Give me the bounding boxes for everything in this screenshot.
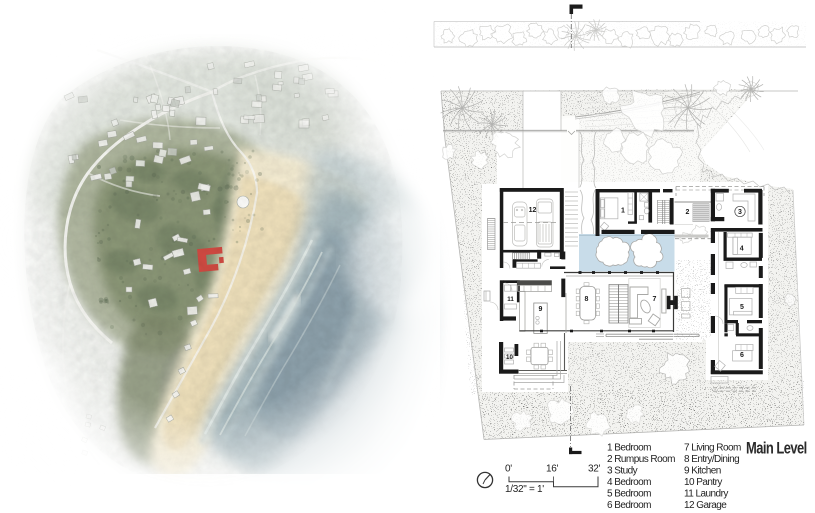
svg-text:7 Living Room: 7 Living Room	[684, 442, 741, 453]
svg-text:2: 2	[686, 209, 690, 216]
svg-text:10 Pantry: 10 Pantry	[684, 477, 722, 488]
svg-text:5 Bedroom: 5 Bedroom	[607, 489, 651, 500]
svg-text:0': 0'	[505, 464, 512, 475]
svg-text:7: 7	[653, 296, 657, 303]
svg-text:10: 10	[506, 354, 513, 361]
svg-text:11 Laundry: 11 Laundry	[684, 489, 728, 500]
svg-text:11: 11	[507, 296, 514, 303]
svg-text:1 Bedroom: 1 Bedroom	[607, 442, 651, 453]
svg-text:32': 32'	[588, 464, 601, 475]
svg-text:8 Entry/Dining: 8 Entry/Dining	[684, 454, 739, 465]
svg-text:8: 8	[585, 296, 589, 303]
svg-text:5: 5	[740, 304, 744, 311]
svg-text:3: 3	[738, 209, 742, 216]
svg-text:3 Study: 3 Study	[607, 466, 638, 477]
svg-text:9: 9	[539, 306, 543, 313]
svg-text:12: 12	[529, 207, 537, 214]
svg-text:1: 1	[621, 208, 625, 215]
svg-text:4 Bedroom: 4 Bedroom	[607, 477, 651, 488]
svg-text:16': 16'	[546, 464, 559, 475]
svg-text:1/32" = 1': 1/32" = 1'	[505, 484, 544, 495]
svg-text:12 Garage: 12 Garage	[684, 500, 727, 511]
svg-text:6: 6	[740, 352, 744, 359]
svg-text:4: 4	[740, 246, 744, 253]
svg-text:6 Bedroom: 6 Bedroom	[607, 500, 651, 511]
svg-text:2 Rumpus Room: 2 Rumpus Room	[607, 454, 675, 465]
svg-text:Main Level: Main Level	[746, 439, 807, 458]
svg-text:9 Kitchen: 9 Kitchen	[684, 466, 721, 477]
